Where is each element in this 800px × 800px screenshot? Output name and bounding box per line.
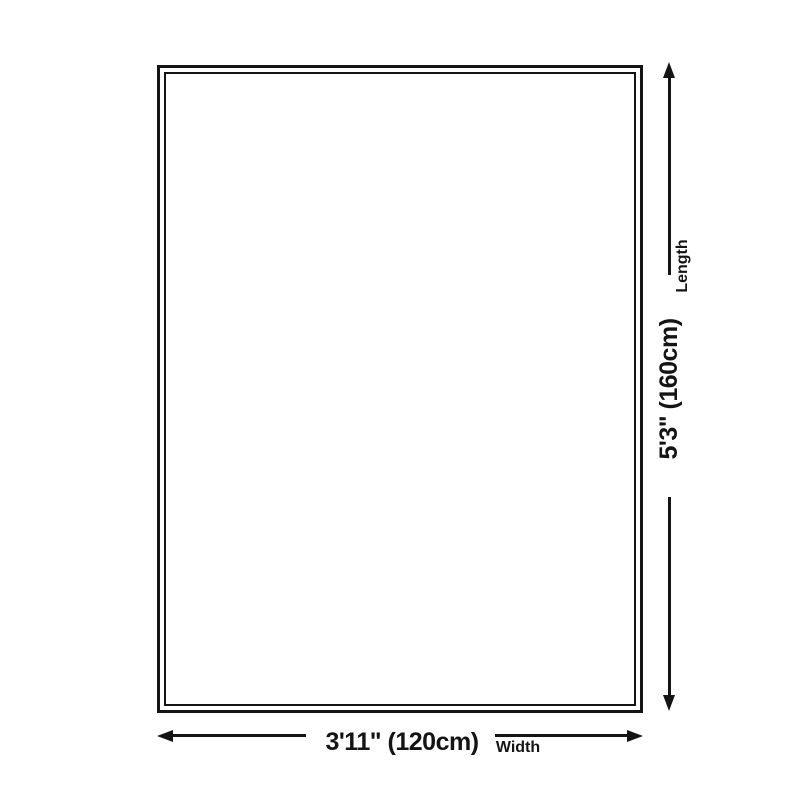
arrow-down-icon (663, 695, 675, 711)
length-value: 5'3" (160cm) (654, 279, 684, 499)
rug-outline (157, 65, 643, 713)
arrow-right-icon (627, 730, 643, 742)
width-axis-label: Width (492, 740, 544, 756)
width-arrow-line-right (495, 734, 628, 737)
length-arrow-line-top (668, 77, 671, 275)
arrow-left-icon (157, 730, 173, 742)
width-value: 3'11" (120cm) (306, 727, 498, 757)
width-arrow-line-left (172, 734, 306, 737)
arrow-up-icon (663, 62, 675, 78)
rug-inner-border (164, 72, 636, 706)
length-arrow-line-bottom (668, 497, 671, 696)
size-diagram: Length 5'3" (160cm) 3'11" (120cm) Width (0, 0, 800, 800)
